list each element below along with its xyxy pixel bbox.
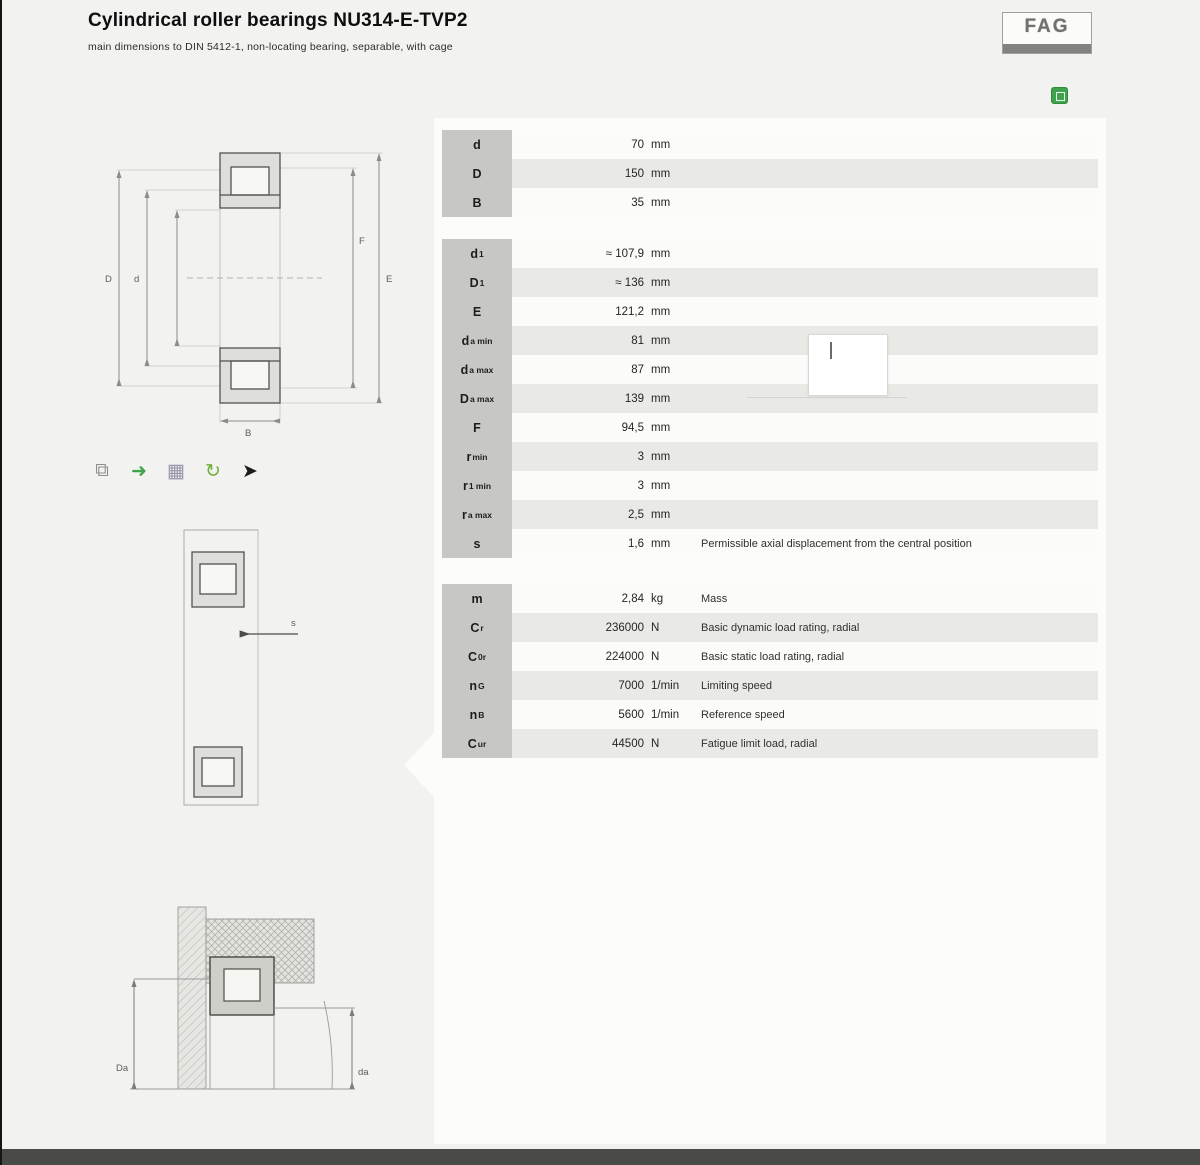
info-button[interactable] (1051, 87, 1068, 104)
spec-unit: mm (651, 139, 699, 151)
table-icon[interactable]: ▦ (164, 458, 188, 484)
section-dimensions: d1≈ 107,9mmD1≈ 136mmE121,2mmda min81mmda… (442, 239, 1098, 558)
spec-row: C0r224000NBasic static load rating, radi… (442, 642, 1098, 671)
spec-label: ra max (442, 500, 512, 529)
spec-value: 3 (512, 480, 644, 492)
spec-value: 81 (512, 335, 644, 347)
spec-value: 35 (512, 197, 644, 209)
dim-label-Da: Da (116, 1063, 129, 1074)
drawing-toolbar: ⧉➜▦↻➤ (90, 458, 262, 484)
spec-row: Da max139mm (442, 384, 1098, 413)
spec-label: E (442, 297, 512, 326)
spec-value: 87 (512, 364, 644, 376)
spec-table: d70mmD150mmB35mmd1≈ 107,9mmD1≈ 136mmE121… (442, 130, 1098, 758)
spec-value: 1,6 (512, 538, 644, 550)
spec-unit: N (651, 738, 699, 750)
spec-row: Cr236000NBasic dynamic load rating, radi… (442, 613, 1098, 642)
text-cursor (830, 342, 832, 359)
spec-unit: mm (651, 509, 699, 521)
spec-label: nB (442, 700, 512, 729)
spec-row: da max87mm (442, 355, 1098, 384)
spec-label: D (442, 159, 512, 188)
spec-value: 121,2 (512, 306, 644, 318)
spec-value: 2,5 (512, 509, 644, 521)
spec-row: d70mm (442, 130, 1098, 159)
spec-label: rmin (442, 442, 512, 471)
spec-row: m2,84kgMass (442, 584, 1098, 613)
spec-value: 70 (512, 139, 644, 151)
bearing-datasheet-page: Cylindrical roller bearings NU314-E-TVP2… (0, 0, 1200, 1165)
spec-row: nG70001/minLimiting speed (442, 671, 1098, 700)
spec-unit: 1/min (651, 709, 699, 721)
spec-value: 5600 (512, 709, 644, 721)
brand-logo: FAG (1002, 12, 1092, 54)
spec-label: C0r (442, 642, 512, 671)
spec-value: 94,5 (512, 422, 644, 434)
spec-label: Da max (442, 384, 512, 413)
spec-unit: mm (651, 393, 699, 405)
spec-value: ≈ 107,9 (512, 248, 644, 260)
spec-label: Cur (442, 729, 512, 758)
spec-row: B35mm (442, 188, 1098, 217)
spec-value: 7000 (512, 680, 644, 692)
spec-row: E121,2mm (442, 297, 1098, 326)
spec-label: d1 (442, 239, 512, 268)
dim-label-d: d (134, 274, 139, 285)
spec-row: Cur44500NFatigue limit load, radial (442, 729, 1098, 758)
pointer-icon[interactable]: ➤ (238, 458, 262, 484)
spec-row: rmin3mm (442, 442, 1098, 471)
spec-row: d1≈ 107,9mm (442, 239, 1098, 268)
spec-unit: kg (651, 593, 699, 605)
brand-logo-text: FAG (1003, 16, 1091, 38)
spec-row: D150mm (442, 159, 1098, 188)
bearing-preview-icon[interactable]: ⧉ (90, 458, 114, 484)
divider-hairline (747, 397, 907, 398)
spec-label: nG (442, 671, 512, 700)
footer-bar (2, 1149, 1200, 1165)
data-panel-tail (404, 733, 434, 797)
spec-unit: mm (651, 480, 699, 492)
spec-unit: mm (651, 306, 699, 318)
rotate-3d-icon[interactable]: ↻ (201, 458, 225, 484)
spec-row: D1≈ 136mm (442, 268, 1098, 297)
spec-label: Cr (442, 613, 512, 642)
spec-row: da min81mm (442, 326, 1098, 355)
spec-unit: mm (651, 168, 699, 180)
section-main-dimensions: d70mmD150mmB35mm (442, 130, 1098, 217)
page-subtitle: main dimensions to DIN 5412-1, non-locat… (88, 41, 668, 53)
spec-label: D1 (442, 268, 512, 297)
spec-row: ra max2,5mm (442, 500, 1098, 529)
brand-logo-bar (1003, 44, 1091, 53)
section-performance-data: m2,84kgMassCr236000NBasic dynamic load r… (442, 584, 1098, 758)
spec-row: F94,5mm (442, 413, 1098, 442)
spec-description: Basic static load rating, radial (699, 651, 1098, 663)
spec-value: 236000 (512, 622, 644, 634)
spec-row: nB56001/minReference speed (442, 700, 1098, 729)
spec-unit: N (651, 651, 699, 663)
spec-label: d (442, 130, 512, 159)
spec-unit: mm (651, 197, 699, 209)
spec-unit: mm (651, 364, 699, 376)
spec-value: ≈ 136 (512, 277, 644, 289)
spec-value: 139 (512, 393, 644, 405)
tooltip-overlay (808, 334, 888, 396)
spec-unit: mm (651, 335, 699, 347)
spec-unit: 1/min (651, 680, 699, 692)
spec-unit: mm (651, 277, 699, 289)
spec-label: F (442, 413, 512, 442)
dim-label-E: E (386, 274, 392, 285)
dim-label-B: B (245, 428, 251, 439)
spec-value: 150 (512, 168, 644, 180)
spec-unit: mm (651, 451, 699, 463)
dim-label-F: F (359, 236, 365, 247)
spec-label: da min (442, 326, 512, 355)
spec-description: Limiting speed (699, 680, 1098, 692)
spec-label: r1 min (442, 471, 512, 500)
spec-label: s (442, 529, 512, 558)
page-title: Cylindrical roller bearings NU314-E-TVP2 (88, 10, 468, 32)
spec-description: Fatigue limit load, radial (699, 738, 1098, 750)
dim-label-s: s (291, 618, 296, 629)
spec-unit: mm (651, 248, 699, 260)
spec-value: 2,84 (512, 593, 644, 605)
spec-unit: N (651, 622, 699, 634)
spec-value: 224000 (512, 651, 644, 663)
spec-label: m (442, 584, 512, 613)
cad-download-icon[interactable]: ➜ (127, 458, 151, 484)
spec-unit: mm (651, 422, 699, 434)
spec-description: Reference speed (699, 709, 1098, 721)
spec-description: Mass (699, 593, 1098, 605)
spec-description: Basic dynamic load rating, radial (699, 622, 1098, 634)
spec-unit: mm (651, 538, 699, 550)
spec-label: B (442, 188, 512, 217)
mounting-drawing: Da da (110, 893, 375, 1111)
spec-description: Permissible axial displacement from the … (699, 538, 1098, 550)
dim-label-D: D (105, 274, 112, 285)
cross-section-drawing: D d E F B (87, 138, 407, 443)
spec-value: 3 (512, 451, 644, 463)
spec-label: da max (442, 355, 512, 384)
axial-displacement-drawing: s (170, 522, 305, 817)
spec-row: s1,6mmPermissible axial displacement fro… (442, 529, 1098, 558)
spec-value: 44500 (512, 738, 644, 750)
dim-label-da: da (358, 1067, 369, 1078)
spec-row: r1 min3mm (442, 471, 1098, 500)
